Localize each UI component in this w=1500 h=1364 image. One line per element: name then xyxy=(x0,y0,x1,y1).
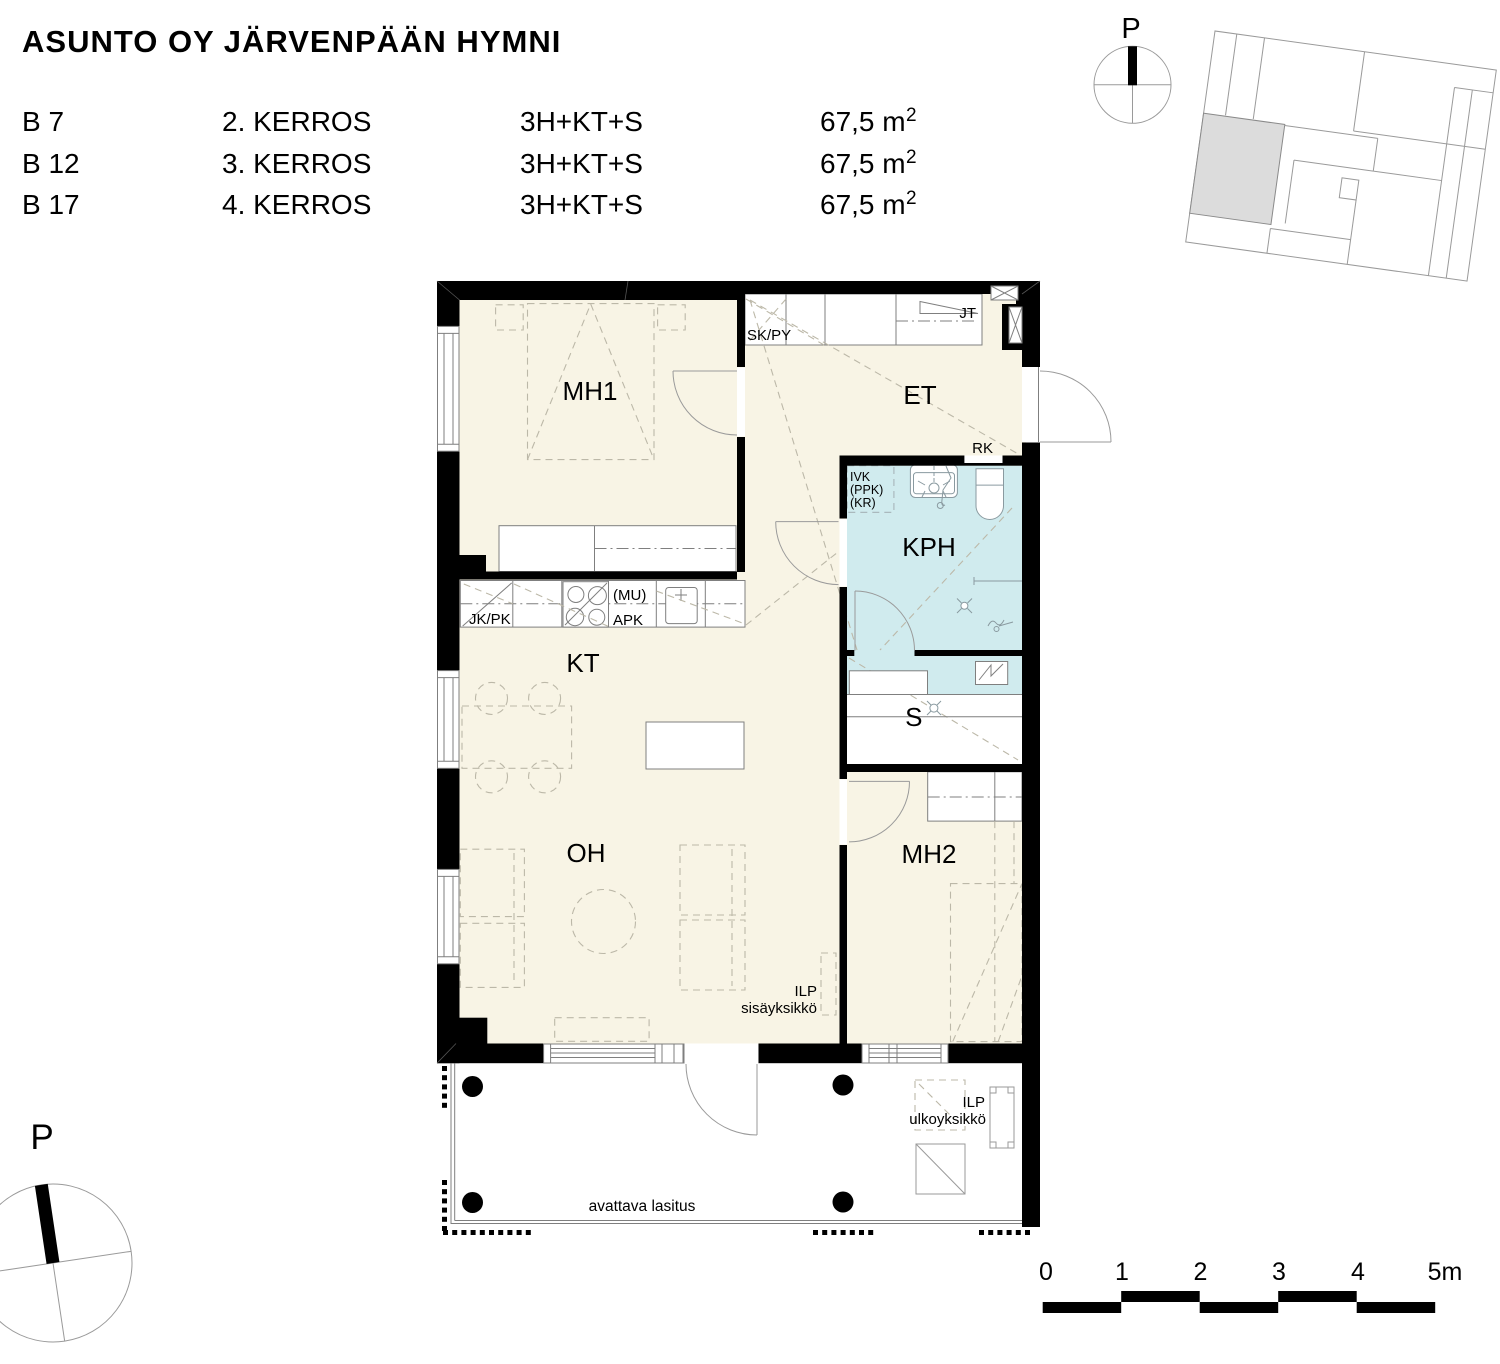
svg-text:67,5 m: 67,5 m xyxy=(820,148,906,179)
svg-text:2: 2 xyxy=(906,188,917,209)
svg-text:MH1: MH1 xyxy=(563,376,618,406)
svg-text:KT: KT xyxy=(566,648,599,678)
svg-text:SK/PY: SK/PY xyxy=(747,327,791,344)
svg-text:RK: RK xyxy=(972,440,993,457)
svg-text:B 12: B 12 xyxy=(22,148,80,179)
svg-text:ulkoyksikkö: ulkoyksikkö xyxy=(909,1111,986,1128)
svg-text:B 17: B 17 xyxy=(22,189,80,220)
svg-text:MH2: MH2 xyxy=(902,839,957,869)
svg-text:(PPK): (PPK) xyxy=(850,483,883,497)
svg-text:P: P xyxy=(1121,13,1140,45)
svg-text:2: 2 xyxy=(1194,1258,1208,1286)
svg-text:sisäyksikkö: sisäyksikkö xyxy=(741,1000,817,1017)
svg-text:KPH: KPH xyxy=(902,532,955,562)
svg-text:1: 1 xyxy=(1115,1258,1129,1286)
svg-text:2: 2 xyxy=(906,147,917,168)
svg-text:3: 3 xyxy=(1272,1258,1286,1286)
svg-text:4. KERROS: 4. KERROS xyxy=(222,189,371,220)
svg-text:0: 0 xyxy=(1039,1258,1053,1286)
svg-text:67,5 m: 67,5 m xyxy=(820,189,906,220)
svg-text:JT: JT xyxy=(959,305,976,322)
svg-text:APK: APK xyxy=(613,612,643,629)
svg-text:3H+KT+S: 3H+KT+S xyxy=(520,106,643,137)
svg-text:3. KERROS: 3. KERROS xyxy=(222,148,371,179)
svg-text:OH: OH xyxy=(567,838,606,868)
svg-text:JK/PK: JK/PK xyxy=(469,611,511,628)
svg-text:67,5 m: 67,5 m xyxy=(820,106,906,137)
svg-text:(MU): (MU) xyxy=(613,587,646,604)
svg-text:ILP: ILP xyxy=(794,983,817,1000)
svg-text:avattava lasitus: avattava lasitus xyxy=(589,1198,696,1215)
svg-text:2. KERROS: 2. KERROS xyxy=(222,106,371,137)
svg-text:2: 2 xyxy=(906,105,917,126)
svg-text:4: 4 xyxy=(1351,1258,1365,1286)
svg-text:S: S xyxy=(905,702,922,732)
svg-text:P: P xyxy=(30,1118,53,1157)
svg-text:ASUNTO OY JÄRVENPÄÄN HYMNI: ASUNTO OY JÄRVENPÄÄN HYMNI xyxy=(22,24,561,59)
svg-text:5m: 5m xyxy=(1428,1258,1463,1286)
svg-text:3H+KT+S: 3H+KT+S xyxy=(520,189,643,220)
svg-text:B 7: B 7 xyxy=(22,106,64,137)
svg-text:IVK: IVK xyxy=(850,470,871,484)
svg-text:ILP: ILP xyxy=(962,1094,985,1111)
svg-text:(KR): (KR) xyxy=(850,496,876,510)
svg-text:3H+KT+S: 3H+KT+S xyxy=(520,148,643,179)
svg-text:ET: ET xyxy=(903,380,936,410)
